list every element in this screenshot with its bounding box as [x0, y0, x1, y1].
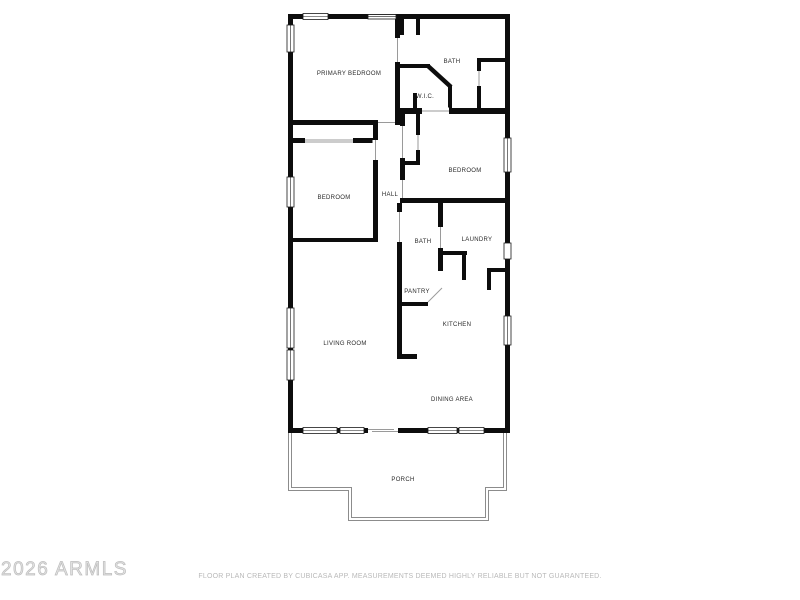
- wall-segment: [288, 120, 378, 125]
- wall-segment: [397, 64, 430, 68]
- wall-segment: [373, 125, 378, 140]
- wall-segment: [416, 19, 420, 35]
- room-label-bath-small: BATH: [415, 239, 432, 245]
- wall-segment: [402, 302, 428, 306]
- room-label-laundry: LAUNDRY: [462, 237, 493, 243]
- door-openings: [305, 38, 482, 434]
- room-label-bedroom-left: BEDROOM: [317, 195, 350, 201]
- wall-segment: [395, 108, 510, 114]
- room-label-pantry: PANTRY: [404, 289, 430, 295]
- wall-segment: [402, 354, 417, 359]
- room-label-kitchen: KITCHEN: [443, 322, 471, 328]
- porch-outline: [292, 433, 504, 518]
- wall-segment: [487, 268, 491, 290]
- room-label-dining-area: DINING AREA: [431, 397, 473, 403]
- pantry-door: [428, 288, 442, 302]
- wall-segment: [477, 62, 481, 71]
- wall-segment: [373, 160, 378, 242]
- wall-segment: [428, 66, 451, 87]
- wall-segment: [400, 19, 404, 35]
- wall-segment: [291, 138, 305, 143]
- window: [504, 243, 511, 259]
- wall-segment: [477, 58, 505, 62]
- room-label-wic: W.I.C.: [416, 94, 434, 100]
- wall-segment: [405, 161, 420, 165]
- armls-watermark: 2026 ARMLS: [1, 559, 128, 581]
- wall-segment: [505, 14, 510, 433]
- patio-slider: [368, 428, 398, 434]
- room-label-bath-top: BATH: [444, 59, 461, 65]
- room-label-living-room: LIVING ROOM: [323, 341, 366, 347]
- wall-segment: [400, 198, 510, 203]
- wall-segment: [416, 114, 420, 135]
- room-label-hall: HALL: [382, 192, 398, 198]
- floor-plan-page: PRIMARY BEDROOM BATH W.I.C. BEDROOM HALL…: [0, 0, 800, 600]
- room-label-porch: PORCH: [391, 477, 414, 483]
- wall-segment: [291, 238, 378, 242]
- footer-disclaimer: FLOOR PLAN CREATED BY CUBICASA APP. MEAS…: [198, 573, 601, 580]
- floor-plan-drawing: [0, 0, 800, 600]
- room-label-primary-bedroom: PRIMARY BEDROOM: [317, 71, 381, 77]
- porch-step-opening: [353, 486, 396, 492]
- room-label-bedroom-right: BEDROOM: [448, 168, 481, 174]
- wall-segment: [462, 251, 466, 280]
